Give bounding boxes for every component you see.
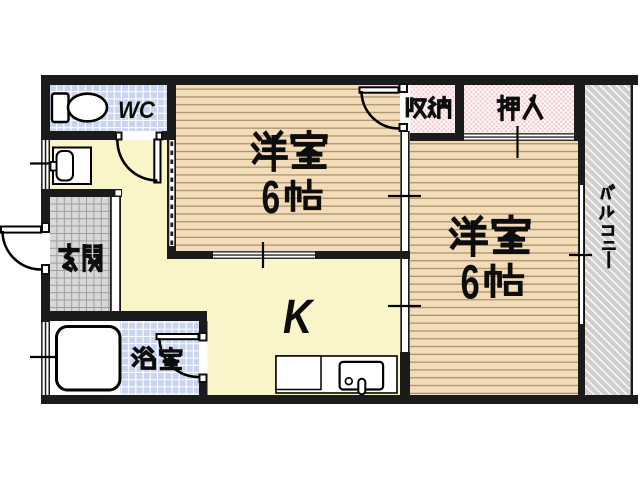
svg-text:6: 6	[262, 172, 281, 223]
svg-text:WC: WC	[118, 96, 155, 123]
svg-text:K: K	[283, 291, 315, 344]
svg-text:6: 6	[461, 255, 480, 309]
